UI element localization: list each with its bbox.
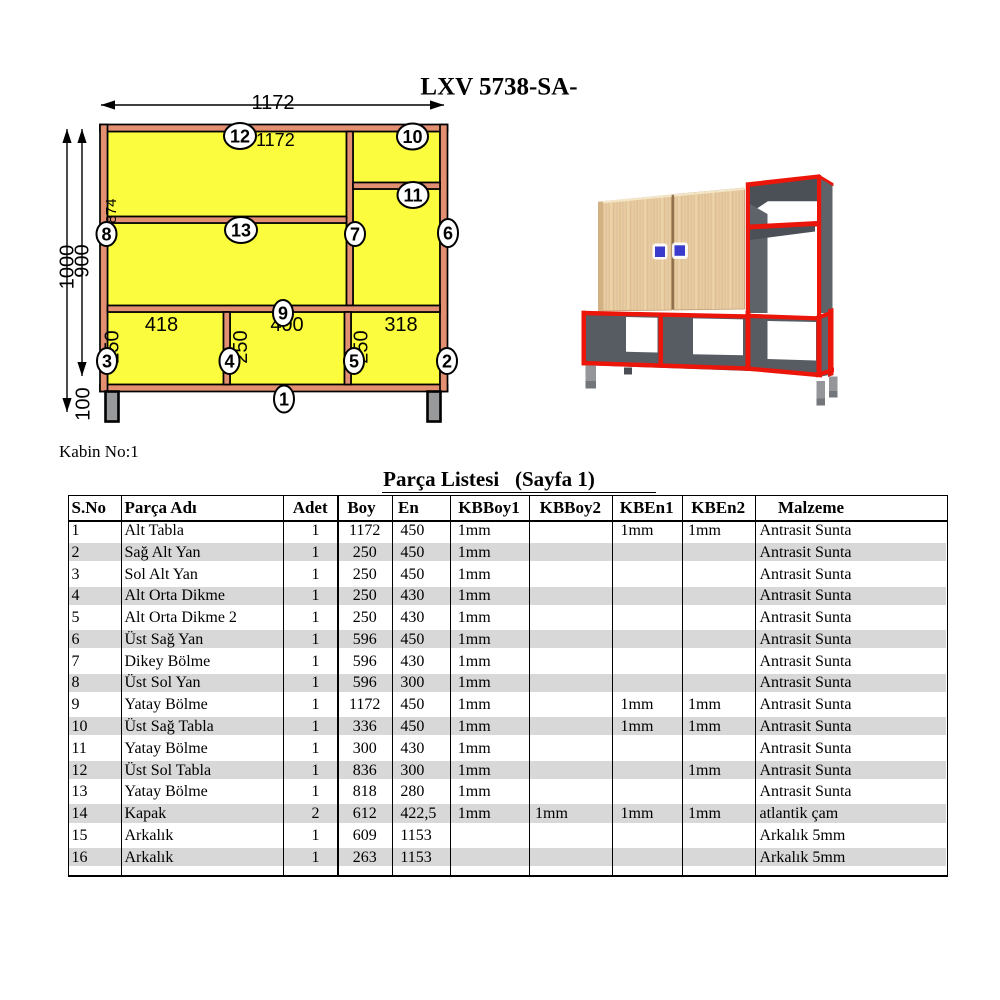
svg-text:4: 4	[224, 351, 234, 371]
svg-text:10: 10	[402, 127, 422, 147]
svg-text:418: 418	[145, 314, 178, 336]
svg-text:5: 5	[349, 351, 359, 371]
svg-text:1172: 1172	[251, 92, 294, 114]
svg-text:6: 6	[443, 223, 453, 243]
svg-text:1172: 1172	[256, 130, 295, 150]
svg-text:2: 2	[442, 351, 452, 371]
svg-text:LXV 5738-SA-: LXV 5738-SA-	[420, 74, 577, 101]
svg-text:900: 900	[72, 244, 94, 277]
svg-text:13: 13	[231, 220, 251, 240]
svg-text:100: 100	[73, 387, 95, 420]
svg-text:1: 1	[279, 389, 289, 409]
svg-text:7: 7	[350, 224, 360, 244]
svg-text:9: 9	[278, 303, 288, 323]
svg-text:318: 318	[384, 314, 417, 336]
svg-text:874: 874	[103, 198, 120, 223]
svg-text:11: 11	[403, 185, 422, 205]
svg-text:8: 8	[101, 224, 111, 244]
svg-text:12: 12	[230, 126, 250, 146]
svg-text:3: 3	[102, 351, 112, 371]
